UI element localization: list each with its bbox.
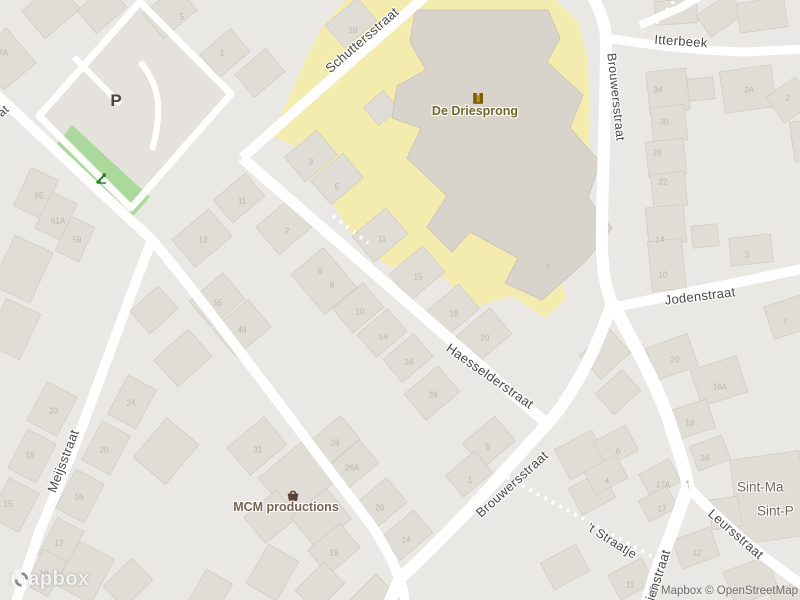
building [650,171,687,208]
map-canvas[interactable] [0,0,800,600]
building [691,224,719,249]
mapbox-logo-icon [10,568,33,591]
map-viewport[interactable]: SchuttersstraatItterbeekBrouwersstraatJo… [0,0,800,600]
building [687,77,715,102]
building [719,65,776,114]
parking-symbol: P [110,91,121,111]
mapbox-logo[interactable]: mapbox [10,568,90,591]
poi-label-mcm-productions[interactable]: MCM productions [233,500,339,514]
building [729,234,774,266]
building [647,238,686,291]
map-attribution[interactable]: © Mapbox © OpenStreetMap [649,585,798,597]
building [650,104,688,143]
poi-label-de-driesprong[interactable]: De Driesprong [432,104,518,118]
